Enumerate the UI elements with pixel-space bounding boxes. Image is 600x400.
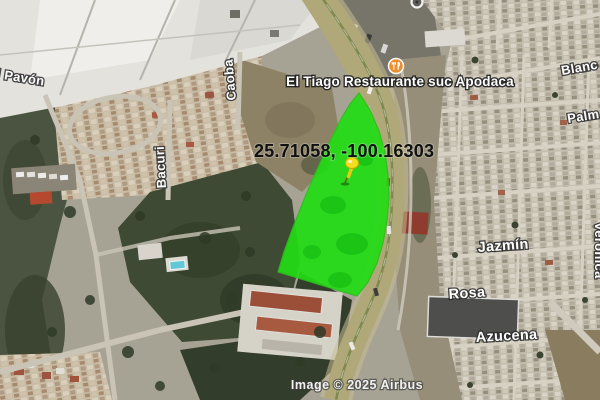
coordinates-label: 25.71058, -100.16303 bbox=[254, 141, 434, 161]
street-label-rosa: Rosa bbox=[448, 284, 486, 303]
restaurant-label: El Tiago Restaurante suc Apodaca bbox=[286, 74, 514, 89]
map-canvas[interactable]: l Pavón Bacuri Caoba Blanc Palm Jazmín V… bbox=[0, 0, 600, 400]
street-label-bacuri: Bacuri bbox=[152, 146, 169, 189]
attribution-label: Image © 2025 Airbus bbox=[291, 378, 423, 392]
school-buildings bbox=[237, 284, 343, 360]
poi-ring-icon[interactable] bbox=[412, 0, 423, 8]
poi-ring-center bbox=[416, 1, 419, 4]
satellite-map-view[interactable]: l Pavón Bacuri Caoba Blanc Palm Jazmín V… bbox=[0, 0, 600, 400]
restaurant-icon[interactable] bbox=[389, 59, 404, 74]
street-label-azucena: Azucena bbox=[475, 327, 538, 346]
street-label-veronica: Veronica bbox=[592, 222, 600, 279]
